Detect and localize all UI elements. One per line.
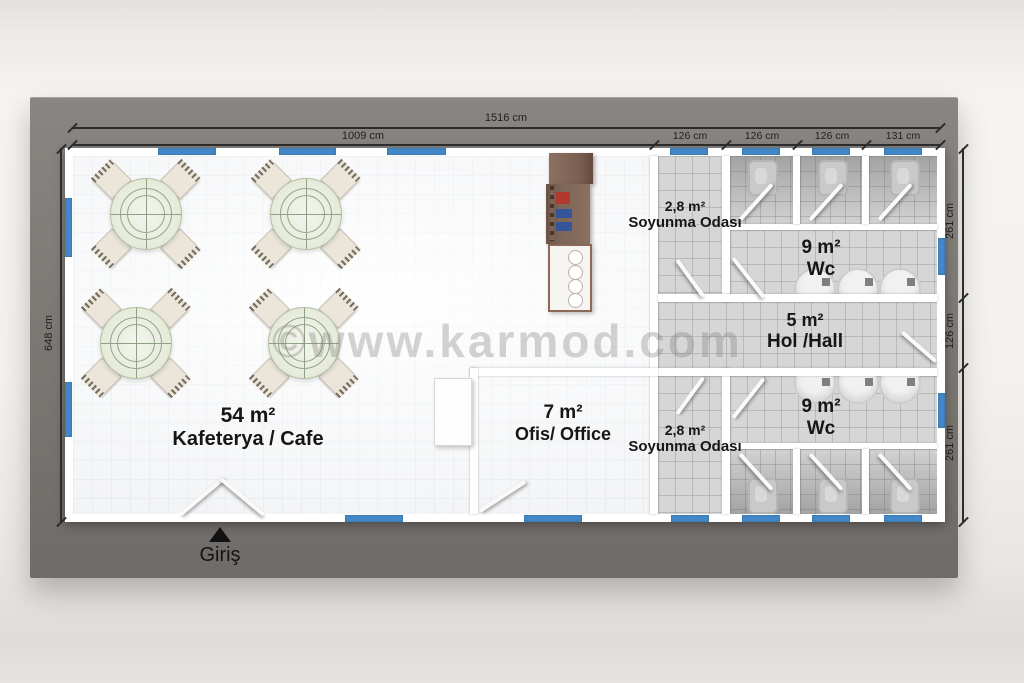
dimension-label-bay: 131 cm xyxy=(873,130,933,142)
room-label-changing-top: 2,8 m² Soyunma Odası xyxy=(605,198,765,231)
faucet-icon xyxy=(907,378,915,386)
room-area: 9 m² xyxy=(736,396,906,418)
room-label-wc-bottom: 9 m² Wc xyxy=(736,396,906,440)
dimension-label-right-segment: 126 cm xyxy=(944,301,956,361)
blue-item xyxy=(556,209,572,218)
dimension-label-bay: 126 cm xyxy=(732,130,792,142)
shelf-knobs xyxy=(550,186,554,241)
entrance-arrow-icon xyxy=(209,527,231,542)
room-name: Wc xyxy=(736,259,906,281)
plate-icon xyxy=(568,293,583,308)
room-name: Wc xyxy=(736,418,906,440)
faucet-icon xyxy=(822,378,830,386)
plate-icon xyxy=(568,279,583,294)
stall-partition xyxy=(793,449,800,514)
dining-table-set xyxy=(250,158,360,268)
plate-icon xyxy=(568,250,583,265)
dimension-label-cafe-width: 1009 cm xyxy=(72,130,654,142)
dining-table-set xyxy=(90,158,200,268)
window xyxy=(158,148,216,155)
room-area: 5 m² xyxy=(720,310,890,331)
room-name: Kafeterya / Cafe xyxy=(138,428,358,451)
dimension-label-right-segment: 261 cm xyxy=(944,413,956,473)
window xyxy=(812,515,850,522)
room-area: 9 m² xyxy=(736,237,906,259)
dimension-line-left-height xyxy=(60,148,62,522)
window xyxy=(671,515,709,522)
counter-shelf xyxy=(546,184,590,244)
wall xyxy=(658,368,937,376)
room-label-wc-top: 9 m² Wc xyxy=(736,237,906,281)
plate-icon xyxy=(568,265,583,280)
faucet-icon xyxy=(865,378,873,386)
dimension-label-left-height: 648 cm xyxy=(43,303,55,363)
dining-table-set xyxy=(80,287,190,397)
window xyxy=(65,198,72,257)
round-table-icon xyxy=(100,307,172,379)
window xyxy=(812,148,850,155)
window xyxy=(938,393,945,428)
room-area: 54 m² xyxy=(138,404,358,428)
room-label-hall: 5 m² Hol /Hall xyxy=(720,310,890,353)
window xyxy=(387,148,446,155)
entrance-label: Giriş xyxy=(175,544,265,567)
window xyxy=(742,148,780,155)
window xyxy=(884,515,922,522)
red-item xyxy=(556,192,570,204)
blue-item xyxy=(556,222,572,231)
wc-stall xyxy=(800,156,862,224)
round-table-icon xyxy=(110,178,182,250)
window xyxy=(938,238,945,275)
faucet-icon xyxy=(907,278,915,286)
room-name: Hol /Hall xyxy=(720,331,890,353)
stall-partition xyxy=(862,449,869,514)
room-name: Soyunma Odası xyxy=(605,214,765,231)
window xyxy=(345,515,403,522)
dimension-line-right-height xyxy=(962,148,964,522)
office-desk xyxy=(434,378,472,446)
window xyxy=(65,382,72,437)
dimension-label-bay: 126 cm xyxy=(802,130,862,142)
dimension-label-bay: 126 cm xyxy=(660,130,720,142)
counter-cabinet xyxy=(549,153,593,184)
dimension-line-total-width xyxy=(72,127,940,129)
room-label-cafeteria: 54 m² Kafeterya / Cafe xyxy=(138,404,358,451)
stall-partition xyxy=(793,156,800,224)
window xyxy=(670,148,708,155)
stall-partition xyxy=(862,156,869,224)
dimension-line-bays xyxy=(72,144,940,146)
display-case xyxy=(548,244,592,312)
room-area: 7 m² xyxy=(478,402,648,424)
room-name: Soyunma Odası xyxy=(605,438,765,455)
wc-stall xyxy=(800,449,862,514)
floor-plan-canvas: 1516 cm 1009 cm 126 cm 126 cm 126 cm 131… xyxy=(0,0,1024,683)
round-table-icon xyxy=(270,178,342,250)
room-area: 2,8 m² xyxy=(605,198,765,214)
watermark: ©www.karmod.com xyxy=(272,314,743,368)
window xyxy=(279,148,336,155)
dimension-label-total-width: 1516 cm xyxy=(72,112,940,124)
window xyxy=(742,515,780,522)
window xyxy=(884,148,922,155)
office-wall xyxy=(470,368,658,376)
dimension-label-right-segment: 261 cm xyxy=(944,191,956,251)
window xyxy=(524,515,582,522)
